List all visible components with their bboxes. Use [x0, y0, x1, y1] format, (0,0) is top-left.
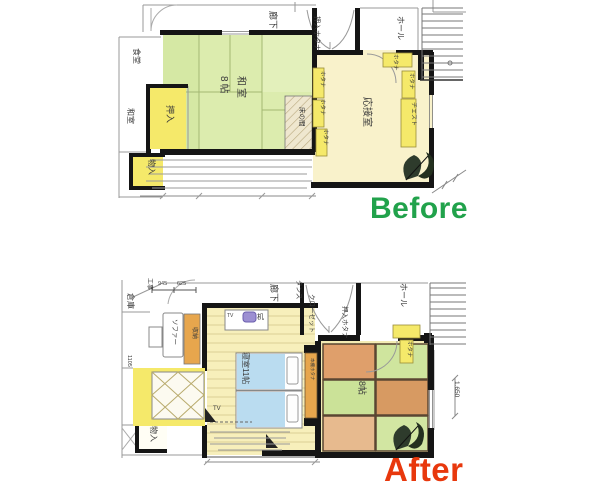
room-label-hall: ホール [396, 16, 404, 40]
label-monoire: 物入 [147, 159, 155, 175]
before-caption: Before [370, 192, 468, 226]
label-hotana: ホタナ [322, 129, 328, 146]
room-label-corridor: 廊下 [269, 284, 278, 302]
label-tansu: タンス [295, 280, 302, 299]
chair [243, 312, 256, 322]
label-storage: 収納 [191, 327, 197, 339]
label-bookshelf: 本棚ホタナ [310, 358, 315, 381]
label-hotana: ホタナ [408, 73, 414, 90]
label-hotana: ホタナ [406, 341, 412, 358]
after-caption: After [384, 451, 464, 489]
room-label-dining: 食堂 [132, 48, 140, 64]
dimension-625: 625 [177, 282, 186, 288]
side-table [149, 327, 162, 347]
dimension-1650: 1.650 [453, 381, 460, 397]
room-label-washitsu-8jo: 和室8帖 [215, 76, 249, 100]
label-oshiire: 押入 [165, 105, 174, 123]
label-oshiire-hotana: 押入ホタナ [313, 16, 320, 51]
floorplan-drawing [0, 0, 600, 500]
room-label-corridor: 廊下 [268, 11, 277, 29]
label-hotana: ホタナ [319, 71, 325, 88]
label-closet: クローゼット [308, 294, 315, 333]
label-tokonoma: 床の間 [298, 107, 305, 127]
after-plan-graphics [122, 280, 466, 465]
dimension-1105: 1105 [126, 355, 132, 367]
room-label-washitsu-side: 和室 [126, 108, 134, 124]
room-label-bedroom: 寝室11帖 [241, 352, 249, 384]
label-hotana: ホタナ [392, 54, 398, 71]
label-monoire: 物入 [149, 426, 157, 442]
room-label-hall: ホール [399, 283, 407, 307]
label-tv-floor: TV [213, 406, 221, 412]
room-label-warehouse: 倉庫 [126, 293, 134, 309]
label-koji: 工事 [146, 278, 152, 290]
before-plan-graphics [119, 0, 466, 199]
door-arc [151, 5, 177, 31]
window-lines [430, 390, 433, 428]
label-desk: 机 [257, 314, 264, 321]
room-label-reception: 応接室 [361, 97, 371, 127]
label-sofa: ソファー [171, 319, 178, 345]
label-desk-tv: TV [227, 314, 233, 319]
staircase [430, 283, 466, 345]
label-oshiire-hotana: 押入ホタナ [341, 306, 348, 339]
label-chest: チェスト [410, 102, 416, 126]
room-label-tatami-8jo: 8帖 [357, 381, 366, 395]
floorplan-before-after-image: 食堂 和室 廊下 押入ホタナ ホール 和室8帖 押入 床の間 応接室 ホタナ ホ… [0, 0, 600, 500]
label-hotana: ホタナ [319, 99, 325, 116]
diagonal-dimension [432, 170, 466, 193]
veranda-lines [140, 160, 316, 199]
dimension-line [152, 287, 196, 293]
dimension-945: 945 [158, 282, 167, 288]
